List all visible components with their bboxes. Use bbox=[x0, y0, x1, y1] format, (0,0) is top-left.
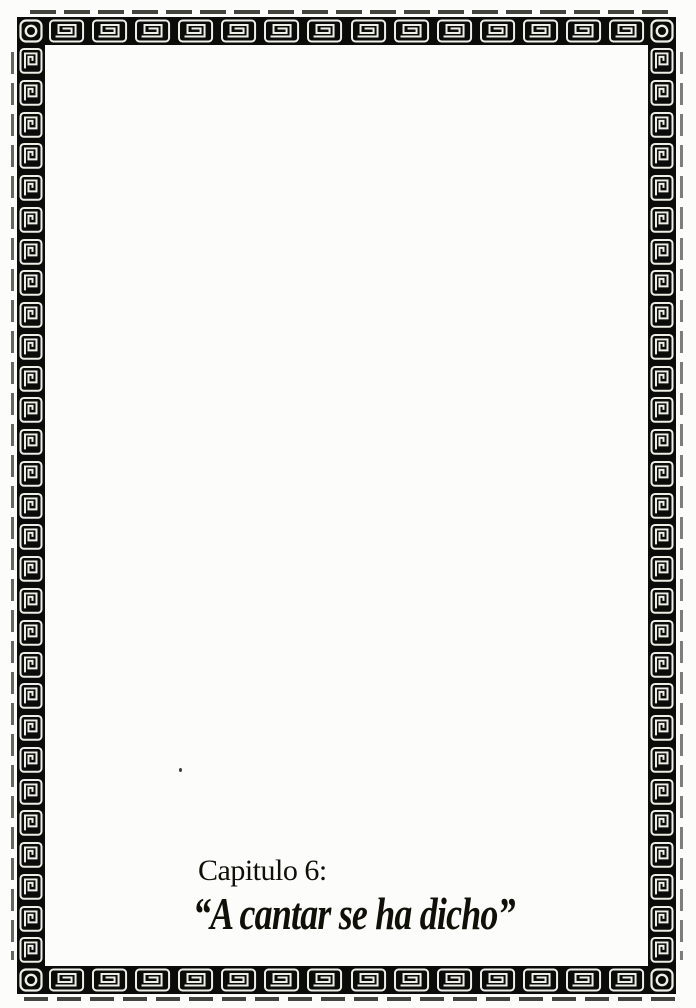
border-bottom bbox=[17, 966, 676, 994]
greek-key-spiral-tile-icon bbox=[260, 966, 303, 994]
greek-key-spiral-tile-icon bbox=[648, 140, 676, 172]
chapter-heading-block: Capitulo 6: “A cantar se ha dicho” bbox=[193, 854, 606, 938]
greek-key-spiral-tile-icon bbox=[17, 45, 45, 77]
scanned-book-page: Capitulo 6: “A cantar se ha dicho” bbox=[0, 0, 696, 1008]
greek-key-spiral-tile-icon bbox=[45, 17, 88, 45]
greek-key-spiral-tile-icon bbox=[260, 17, 303, 45]
greek-key-spiral-tile-icon bbox=[17, 744, 45, 776]
greek-key-spiral-tile-icon bbox=[476, 17, 519, 45]
greek-key-spiral-tile-icon bbox=[648, 585, 676, 617]
border-top bbox=[17, 17, 676, 45]
greek-key-spiral-tile-icon bbox=[17, 458, 45, 490]
greek-key-spiral-tile-icon bbox=[648, 807, 676, 839]
greek-key-spiral-tile-icon bbox=[45, 966, 88, 994]
greek-key-spiral-tile-icon bbox=[303, 17, 346, 45]
border-left bbox=[17, 45, 45, 966]
greek-key-spiral-tile-icon bbox=[17, 109, 45, 141]
greek-key-spiral-tile-icon bbox=[648, 236, 676, 268]
greek-key-spiral-tile-icon bbox=[648, 712, 676, 744]
greek-key-spiral-tile-icon bbox=[347, 17, 390, 45]
greek-key-spiral-tile-icon bbox=[17, 363, 45, 395]
greek-key-spiral-tile-icon bbox=[562, 17, 605, 45]
greek-key-spiral-tile-icon bbox=[17, 236, 45, 268]
scan-artifact-dashes-right bbox=[680, 52, 683, 960]
greek-key-spiral-tile-icon bbox=[88, 17, 131, 45]
greek-key-spiral-tile-icon bbox=[17, 934, 45, 966]
greek-key-spiral-tile-icon bbox=[605, 17, 648, 45]
greek-key-spiral-tile-icon bbox=[648, 680, 676, 712]
greek-key-spiral-tile-icon bbox=[174, 17, 217, 45]
greek-key-spiral-tile-icon bbox=[217, 17, 260, 45]
scan-speck bbox=[179, 768, 182, 772]
greek-key-spiral-tile-icon bbox=[648, 649, 676, 681]
greek-key-spiral-tile-icon bbox=[648, 553, 676, 585]
greek-key-spiral-tile-icon bbox=[17, 680, 45, 712]
greek-key-spiral-tile-icon bbox=[17, 140, 45, 172]
greek-key-spiral-tile-icon bbox=[17, 871, 45, 903]
greek-key-spiral-tile-icon bbox=[131, 17, 174, 45]
chapter-title: “A cantar se ha dicho” bbox=[193, 890, 515, 938]
greek-key-spiral-tile-icon bbox=[648, 871, 676, 903]
greek-key-spiral-tile-icon bbox=[648, 267, 676, 299]
greek-key-spiral-tile-icon bbox=[17, 267, 45, 299]
greek-key-spiral-tile-icon bbox=[648, 903, 676, 935]
greek-key-spiral-tile-icon bbox=[17, 712, 45, 744]
scan-artifact-dashes-left bbox=[11, 52, 14, 960]
greek-key-spiral-tile-icon bbox=[17, 77, 45, 109]
circle-medallion-tile-icon bbox=[648, 17, 676, 45]
greek-key-spiral-tile-icon bbox=[648, 109, 676, 141]
greek-key-spiral-tile-icon bbox=[17, 299, 45, 331]
greek-key-spiral-tile-icon bbox=[562, 966, 605, 994]
greek-key-spiral-tile-icon bbox=[17, 204, 45, 236]
scan-artifact-dashes-top bbox=[30, 10, 676, 14]
greek-key-spiral-tile-icon bbox=[17, 903, 45, 935]
greek-key-spiral-tile-icon bbox=[433, 966, 476, 994]
greek-key-spiral-tile-icon bbox=[648, 426, 676, 458]
greek-key-spiral-tile-icon bbox=[88, 966, 131, 994]
greek-key-spiral-tile-icon bbox=[217, 966, 260, 994]
greek-key-spiral-tile-icon bbox=[648, 839, 676, 871]
greek-key-spiral-tile-icon bbox=[17, 649, 45, 681]
circle-medallion-tile-icon bbox=[17, 966, 45, 994]
chapter-label: Capitulo 6: bbox=[193, 854, 606, 888]
greek-key-spiral-tile-icon bbox=[648, 490, 676, 522]
greek-key-spiral-tile-icon bbox=[17, 521, 45, 553]
border-right bbox=[648, 45, 676, 966]
greek-key-spiral-tile-icon bbox=[648, 204, 676, 236]
greek-key-spiral-tile-icon bbox=[648, 617, 676, 649]
greek-key-spiral-tile-icon bbox=[648, 331, 676, 363]
greek-key-spiral-tile-icon bbox=[519, 17, 562, 45]
greek-key-spiral-tile-icon bbox=[303, 966, 346, 994]
greek-key-spiral-tile-icon bbox=[648, 458, 676, 490]
greek-key-spiral-tile-icon bbox=[17, 807, 45, 839]
greek-key-spiral-tile-icon bbox=[17, 776, 45, 808]
greek-key-spiral-tile-icon bbox=[648, 521, 676, 553]
greek-key-spiral-tile-icon bbox=[390, 17, 433, 45]
greek-key-spiral-tile-icon bbox=[390, 966, 433, 994]
greek-key-spiral-tile-icon bbox=[17, 172, 45, 204]
greek-key-spiral-tile-icon bbox=[17, 426, 45, 458]
greek-key-spiral-tile-icon bbox=[519, 966, 562, 994]
greek-key-spiral-tile-icon bbox=[17, 490, 45, 522]
greek-key-spiral-tile-icon bbox=[648, 744, 676, 776]
greek-key-spiral-tile-icon bbox=[131, 966, 174, 994]
greek-key-spiral-tile-icon bbox=[17, 585, 45, 617]
greek-key-spiral-tile-icon bbox=[17, 839, 45, 871]
greek-key-spiral-tile-icon bbox=[605, 966, 648, 994]
greek-key-spiral-tile-icon bbox=[648, 934, 676, 966]
greek-key-spiral-tile-icon bbox=[17, 553, 45, 585]
greek-key-spiral-tile-icon bbox=[433, 17, 476, 45]
greek-key-spiral-tile-icon bbox=[648, 776, 676, 808]
circle-medallion-tile-icon bbox=[17, 17, 45, 45]
greek-key-spiral-tile-icon bbox=[648, 45, 676, 77]
greek-key-spiral-tile-icon bbox=[648, 172, 676, 204]
greek-key-spiral-tile-icon bbox=[648, 77, 676, 109]
greek-key-spiral-tile-icon bbox=[174, 966, 217, 994]
greek-key-spiral-tile-icon bbox=[17, 617, 45, 649]
greek-key-spiral-tile-icon bbox=[648, 363, 676, 395]
greek-key-spiral-tile-icon bbox=[648, 394, 676, 426]
greek-key-spiral-tile-icon bbox=[17, 394, 45, 426]
greek-key-spiral-tile-icon bbox=[476, 966, 519, 994]
greek-key-spiral-tile-icon bbox=[17, 331, 45, 363]
scan-artifact-dashes-bottom bbox=[24, 997, 678, 1001]
greek-key-spiral-tile-icon bbox=[347, 966, 390, 994]
greek-key-spiral-tile-icon bbox=[648, 299, 676, 331]
circle-medallion-tile-icon bbox=[648, 966, 676, 994]
